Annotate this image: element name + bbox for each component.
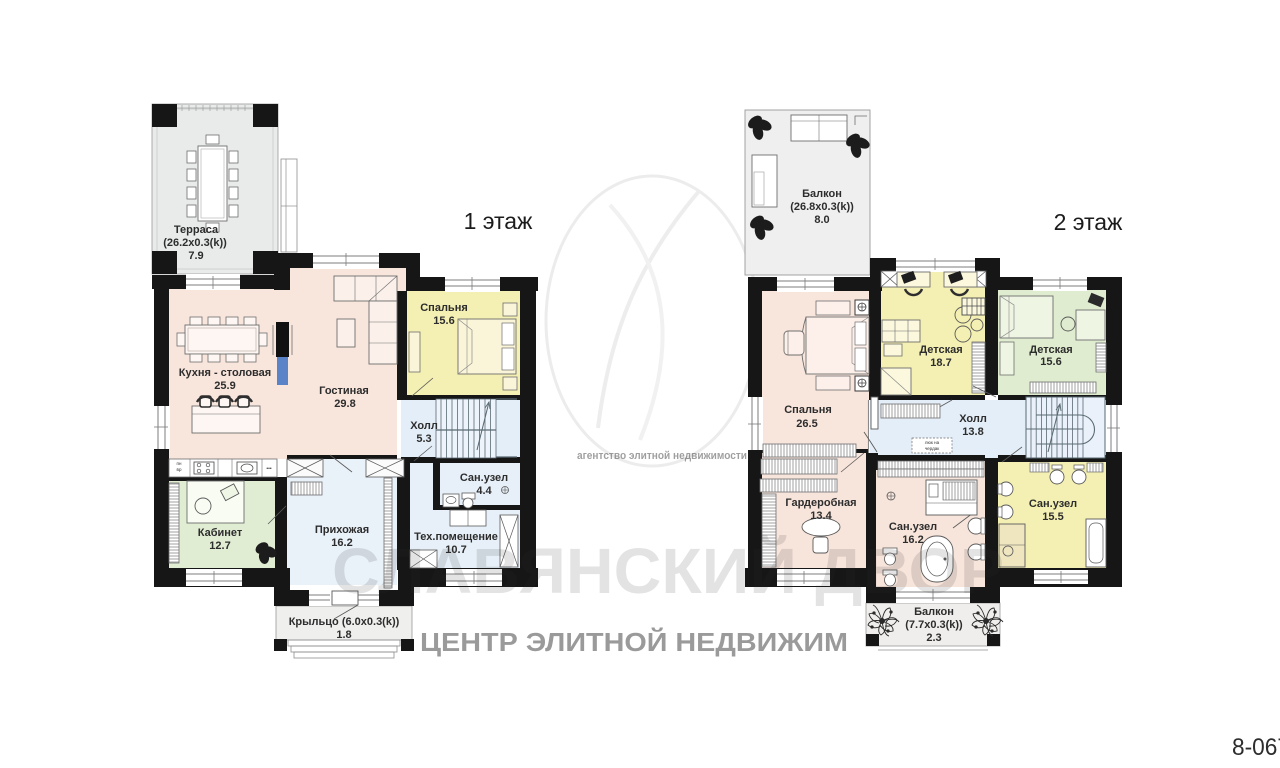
- svg-text:2.3: 2.3: [926, 632, 941, 644]
- svg-text:Гардеробная: Гардеробная: [785, 497, 856, 509]
- svg-text:(26.8х0.3(k)): (26.8х0.3(k)): [790, 201, 854, 213]
- svg-text:25.9: 25.9: [214, 380, 235, 392]
- svg-text:агентство элитной недвижимости: агентство элитной недвижимости: [577, 450, 747, 462]
- svg-text:Спальня: Спальня: [420, 302, 468, 314]
- svg-text:13.8: 13.8: [962, 426, 983, 438]
- svg-text:•••: •••: [266, 466, 272, 472]
- svg-text:Балкон: Балкон: [914, 606, 954, 618]
- svg-text:Кухня - столовая: Кухня - столовая: [179, 367, 271, 379]
- svg-text:чердак: чердак: [925, 446, 939, 451]
- svg-text:5.3: 5.3: [416, 433, 431, 445]
- svg-text:Холл: Холл: [959, 413, 987, 425]
- svg-text:18.7: 18.7: [930, 357, 951, 369]
- svg-text:29.8: 29.8: [334, 398, 355, 410]
- svg-text:1 этаж: 1 этаж: [464, 208, 533, 234]
- svg-text:(7.7х0.3(k)): (7.7х0.3(k)): [905, 619, 963, 631]
- svg-text:Холл: Холл: [410, 420, 438, 432]
- svg-text:15.6: 15.6: [433, 315, 454, 327]
- svg-text:1.8: 1.8: [336, 629, 351, 641]
- svg-text:Детская: Детская: [1029, 344, 1072, 356]
- svg-text:СЛАВЯНСКИЙ ДВОР: СЛАВЯНСКИЙ ДВОР: [332, 534, 1004, 607]
- svg-text:Сан.узел: Сан.узел: [1029, 498, 1077, 510]
- svg-text:8-067: 8-067: [1232, 734, 1280, 761]
- svg-text:Сан.узел: Сан.узел: [460, 472, 508, 484]
- svg-text:7.9: 7.9: [188, 250, 203, 262]
- svg-text:Сан.узел: Сан.узел: [889, 521, 937, 533]
- svg-text:4.4: 4.4: [476, 485, 492, 497]
- svg-text:Терраса: Терраса: [174, 224, 219, 236]
- svg-text:Крыльцо (6.0х0.3(k)): Крыльцо (6.0х0.3(k)): [289, 616, 400, 628]
- svg-text:2 этаж: 2 этаж: [1054, 209, 1123, 235]
- svg-text:люк на: люк на: [925, 440, 940, 445]
- svg-text:Детская: Детская: [919, 344, 962, 356]
- svg-text:12.7: 12.7: [209, 540, 230, 552]
- svg-text:13.4: 13.4: [810, 510, 832, 522]
- svg-text:пн: пн: [177, 461, 182, 466]
- svg-text:8.0: 8.0: [814, 214, 829, 226]
- svg-text:Гостиная: Гостиная: [319, 385, 369, 397]
- svg-text:15.5: 15.5: [1042, 511, 1063, 523]
- svg-text:Кабинет: Кабинет: [198, 527, 243, 539]
- svg-text:вр: вр: [177, 467, 182, 472]
- svg-text:Балкон: Балкон: [802, 188, 842, 200]
- svg-text:(26.2х0.3(k)): (26.2х0.3(k)): [163, 237, 227, 249]
- svg-text:26.5: 26.5: [796, 418, 817, 430]
- svg-text:ЦЕНТР ЭЛИТНОЙ НЕДВИЖИМ: ЦЕНТР ЭЛИТНОЙ НЕДВИЖИМ: [420, 627, 848, 657]
- svg-text:15.6: 15.6: [1040, 356, 1061, 368]
- svg-text:Спальня: Спальня: [784, 404, 832, 416]
